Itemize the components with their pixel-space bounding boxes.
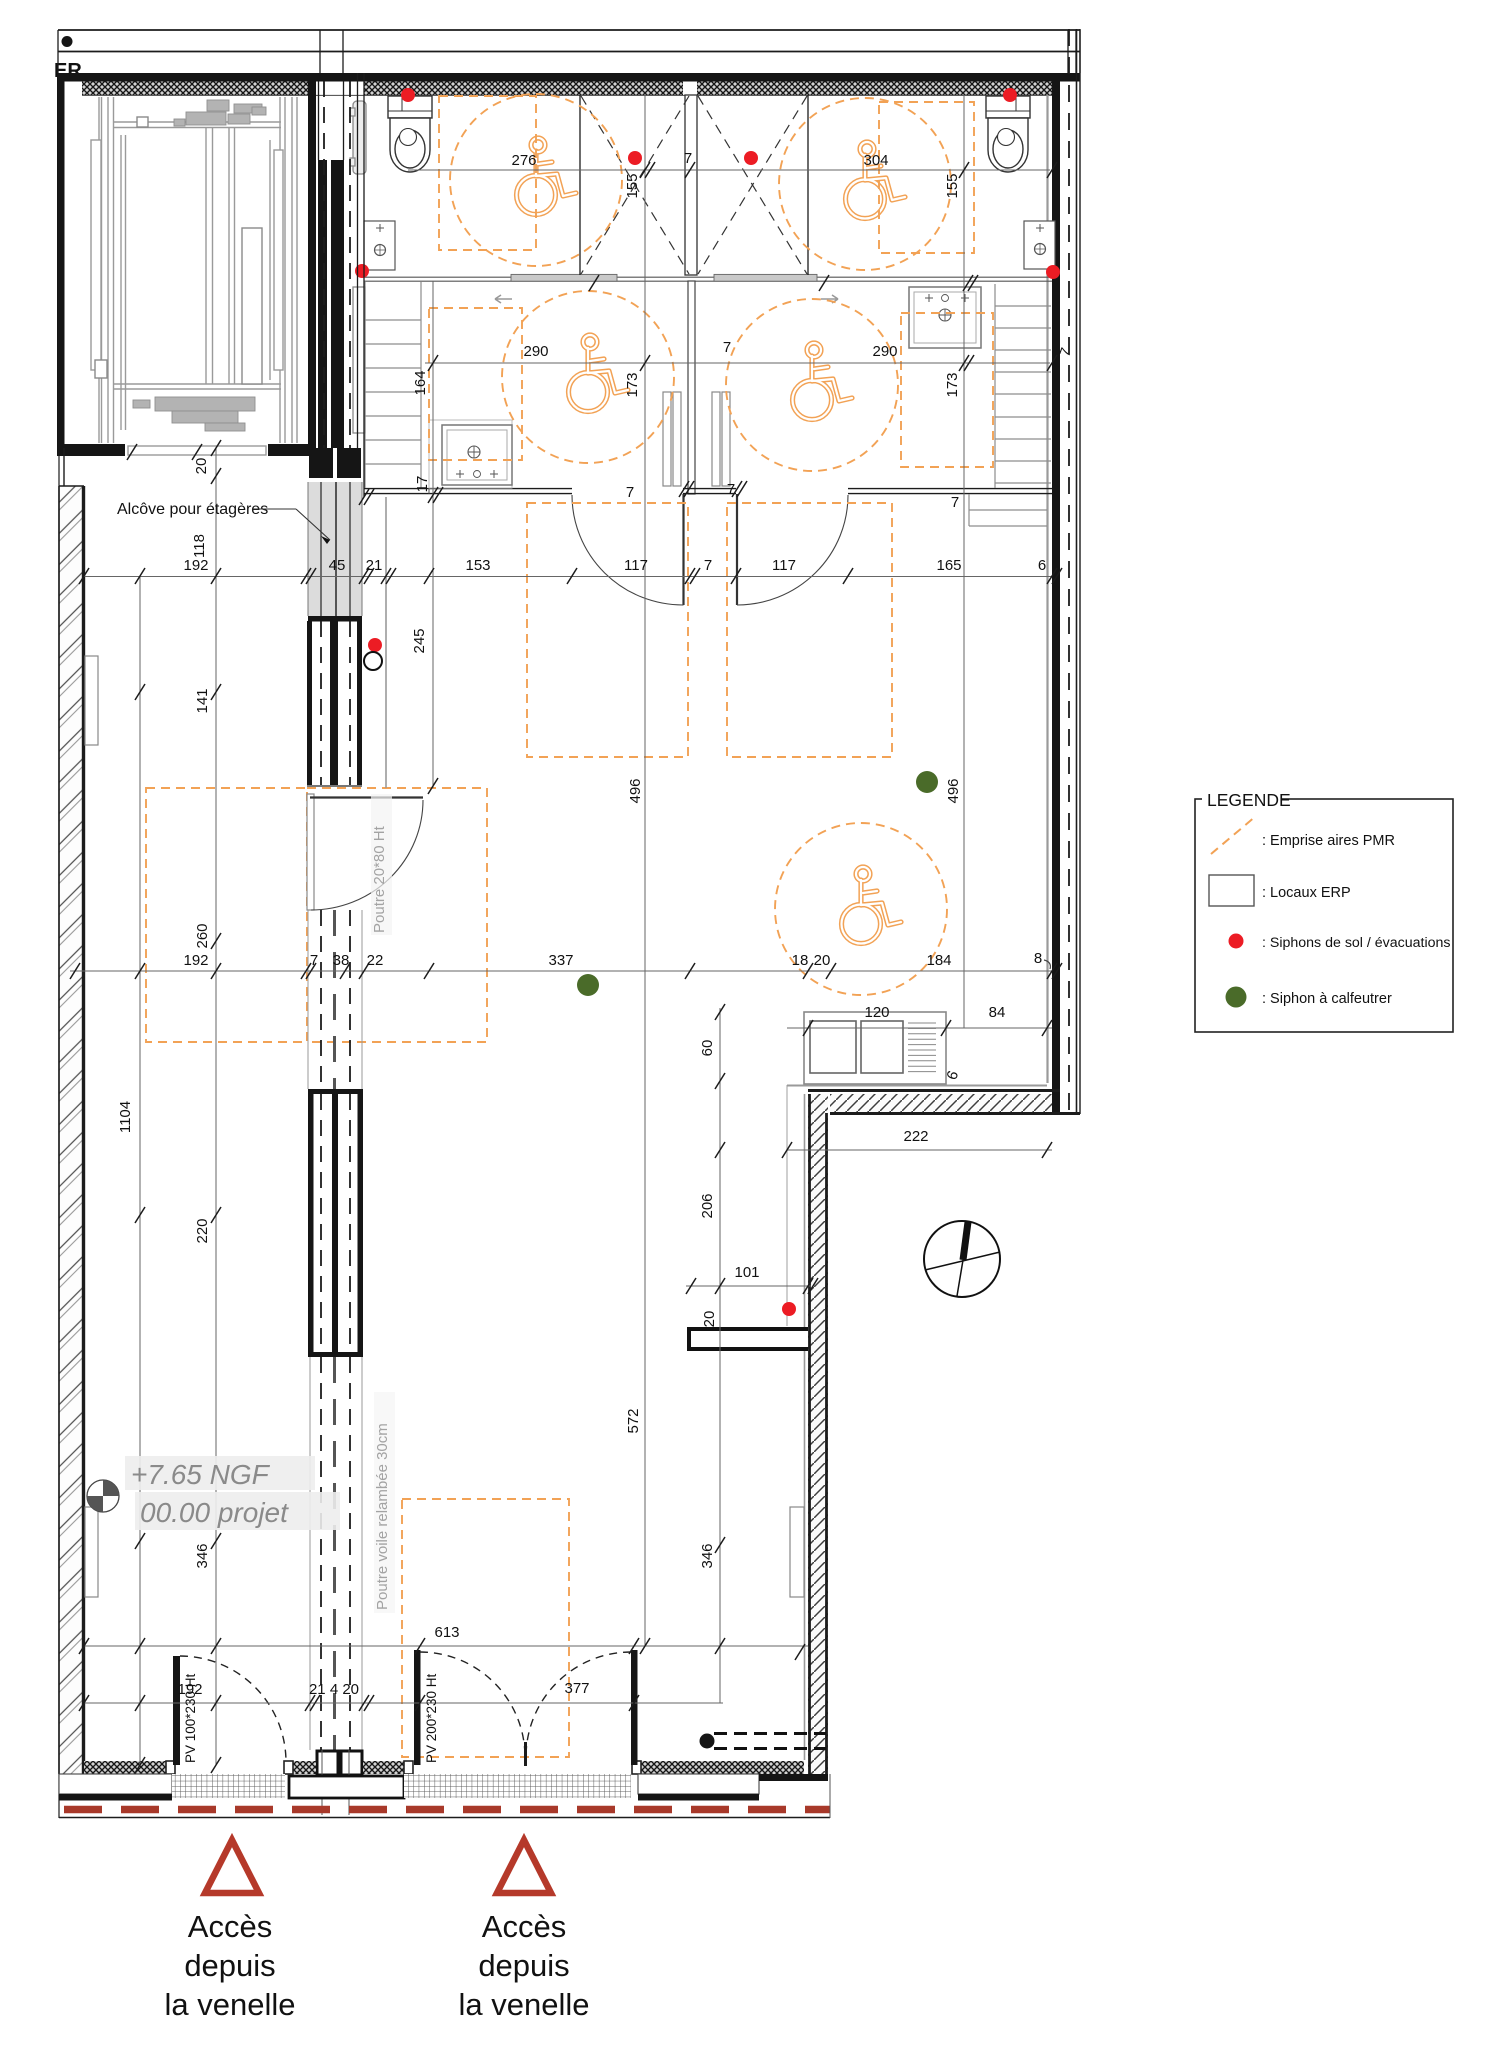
svg-text:Poutre voile relambée 30cm: Poutre voile relambée 30cm — [374, 1423, 391, 1610]
svg-text:173: 173 — [624, 372, 641, 397]
svg-text:346: 346 — [699, 1543, 716, 1568]
svg-text:20: 20 — [814, 952, 831, 969]
svg-text:8: 8 — [1034, 950, 1042, 967]
svg-text:192: 192 — [183, 557, 208, 574]
svg-text:Accès: Accès — [188, 1909, 272, 1944]
svg-text:7: 7 — [951, 494, 959, 511]
svg-text:depuis: depuis — [184, 1948, 275, 1983]
svg-text:22: 22 — [367, 952, 384, 969]
svg-text:290: 290 — [872, 343, 897, 360]
svg-text:184: 184 — [926, 952, 951, 969]
svg-text:la venelle: la venelle — [459, 1987, 590, 2022]
svg-text:192: 192 — [183, 952, 208, 969]
svg-text:7: 7 — [723, 339, 731, 356]
svg-text:: Siphons de sol / évacuations: : Siphons de sol / évacuations — [1262, 935, 1451, 951]
svg-text:613: 613 — [434, 1624, 459, 1641]
svg-text:Alcôve pour étagères: Alcôve pour étagères — [117, 501, 268, 518]
svg-text:18: 18 — [792, 952, 809, 969]
svg-text:1104: 1104 — [117, 1101, 134, 1133]
svg-text:304: 304 — [863, 152, 888, 169]
svg-text:84: 84 — [989, 1004, 1006, 1021]
svg-text:7: 7 — [727, 481, 735, 498]
svg-text:7: 7 — [684, 150, 692, 167]
svg-text:depuis: depuis — [478, 1948, 569, 1983]
svg-text:20: 20 — [193, 458, 210, 475]
svg-text:7: 7 — [704, 557, 712, 574]
svg-text:21: 21 — [366, 557, 383, 574]
svg-text:155: 155 — [624, 173, 641, 198]
svg-text:Poutre 20*80 Ht: Poutre 20*80 Ht — [371, 825, 388, 933]
svg-text:346: 346 — [194, 1543, 211, 1568]
svg-text:260: 260 — [194, 923, 211, 948]
svg-text:141: 141 — [194, 688, 211, 713]
svg-text:60: 60 — [699, 1040, 716, 1057]
svg-text:20: 20 — [701, 1311, 718, 1328]
svg-text:337: 337 — [548, 952, 573, 969]
svg-text:572: 572 — [625, 1408, 642, 1433]
svg-text:Accès: Accès — [482, 1909, 566, 1944]
svg-text:: Emprise aires PMR: : Emprise aires PMR — [1262, 833, 1395, 849]
svg-text:220: 220 — [194, 1218, 211, 1243]
svg-text:LEGENDE: LEGENDE — [1207, 790, 1291, 810]
svg-text:38: 38 — [333, 952, 350, 969]
svg-text:120: 120 — [864, 1004, 889, 1021]
svg-text:+7.65 NGF: +7.65 NGF — [131, 1459, 271, 1490]
svg-text:118: 118 — [191, 534, 208, 558]
svg-text:: Locaux ERP: : Locaux ERP — [1262, 885, 1351, 901]
svg-text:7: 7 — [310, 952, 318, 969]
svg-text:290: 290 — [523, 343, 548, 360]
svg-text:222: 222 — [903, 1128, 928, 1145]
svg-text:165: 165 — [936, 557, 961, 574]
svg-text:00.00 projet: 00.00 projet — [140, 1497, 289, 1528]
svg-text:117: 117 — [772, 557, 796, 574]
svg-text:7: 7 — [626, 484, 634, 501]
svg-text:45: 45 — [329, 557, 346, 574]
svg-text:496: 496 — [945, 778, 962, 803]
svg-text:173: 173 — [944, 372, 961, 397]
svg-text:377: 377 — [564, 1680, 589, 1697]
svg-text:PV 200*230 Ht: PV 200*230 Ht — [424, 1673, 439, 1763]
svg-text:la venelle: la venelle — [165, 1987, 296, 2022]
svg-text:206: 206 — [699, 1193, 716, 1218]
svg-text:276: 276 — [511, 152, 536, 169]
svg-text:245: 245 — [411, 628, 428, 653]
svg-text:101: 101 — [734, 1264, 759, 1281]
svg-text:21 4 20: 21 4 20 — [309, 1681, 359, 1698]
svg-text:496: 496 — [627, 778, 644, 803]
svg-text:PV 100*230 Ht: PV 100*230 Ht — [183, 1673, 198, 1763]
svg-text:155: 155 — [944, 173, 961, 198]
svg-text:117: 117 — [624, 557, 648, 574]
svg-text:6: 6 — [1038, 557, 1046, 574]
svg-text:: Siphon à calfeutrer: : Siphon à calfeutrer — [1262, 991, 1392, 1007]
svg-text:153: 153 — [465, 557, 490, 574]
svg-text:17: 17 — [414, 476, 431, 493]
svg-text:164: 164 — [412, 370, 429, 395]
